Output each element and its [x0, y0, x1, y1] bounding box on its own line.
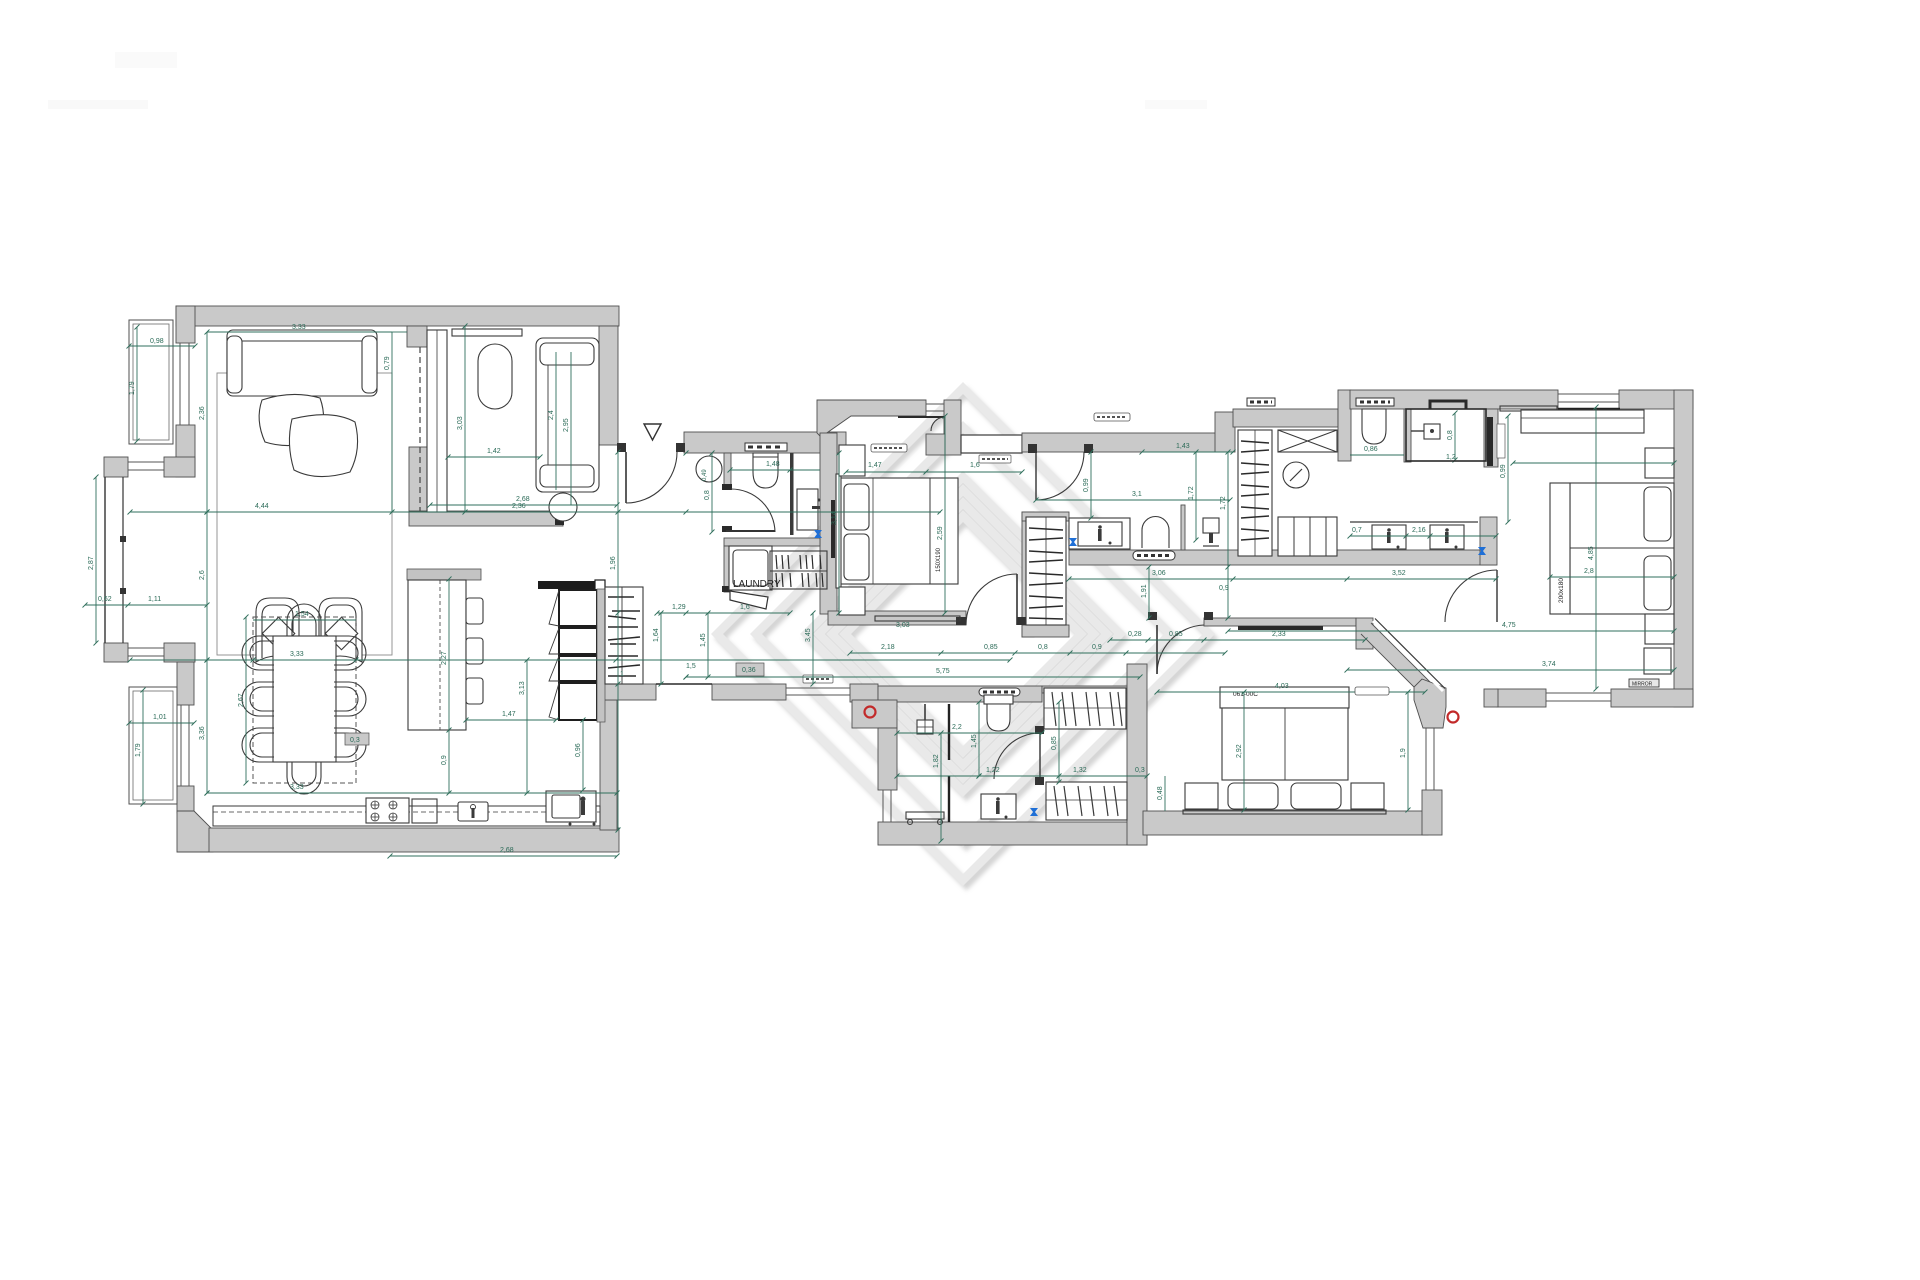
svg-text:3,03: 3,03	[896, 622, 910, 629]
svg-text:1,91: 1,91	[1141, 584, 1148, 598]
svg-text:0,36: 0,36	[742, 667, 756, 674]
svg-text:LAUNDRY: LAUNDRY	[733, 579, 781, 590]
svg-text:2,4: 2,4	[548, 410, 555, 420]
svg-text:3,33: 3,33	[290, 651, 304, 658]
svg-text:1,42: 1,42	[487, 448, 501, 455]
svg-text:2,95: 2,95	[563, 418, 570, 432]
svg-text:1,47: 1,47	[502, 711, 516, 718]
svg-text:2,87: 2,87	[88, 556, 95, 570]
svg-text:0,85: 0,85	[984, 644, 998, 651]
svg-text:1,79: 1,79	[129, 381, 136, 395]
svg-text:1,45: 1,45	[971, 734, 978, 748]
svg-text:1,43: 1,43	[1176, 443, 1190, 450]
svg-text:1,45: 1,45	[700, 633, 707, 647]
svg-text:0,49: 0,49	[702, 469, 708, 481]
svg-text:0,7: 0,7	[1352, 527, 1362, 534]
svg-text:2,67: 2,67	[238, 693, 245, 707]
svg-text:150X190: 150X190	[936, 547, 942, 572]
svg-text:4,85: 4,85	[1588, 546, 1595, 560]
svg-text:2,18: 2,18	[881, 644, 895, 651]
svg-text:3,74: 3,74	[1542, 661, 1556, 668]
svg-text:3,33: 3,33	[290, 784, 304, 791]
svg-text:5,75: 5,75	[936, 668, 950, 675]
svg-text:2,33: 2,33	[1272, 631, 1286, 638]
svg-text:0,8: 0,8	[1038, 644, 1048, 651]
svg-text:1,6: 1,6	[740, 604, 750, 611]
svg-text:0,9: 0,9	[1092, 644, 1102, 651]
svg-text:1,72: 1,72	[1188, 486, 1195, 500]
svg-text:0,9: 0,9	[441, 755, 448, 765]
svg-text:0,85: 0,85	[1051, 736, 1058, 750]
svg-text:0,98: 0,98	[150, 338, 164, 345]
svg-text:2,6: 2,6	[199, 570, 206, 580]
svg-text:2,27: 2,27	[441, 651, 448, 665]
svg-text:3,03: 3,03	[457, 416, 464, 430]
svg-text:3,13: 3,13	[519, 681, 526, 695]
svg-text:1,29: 1,29	[672, 604, 686, 611]
svg-text:1,32: 1,32	[1073, 767, 1087, 774]
svg-text:0,9: 0,9	[1219, 585, 1229, 592]
svg-text:0,96: 0,96	[575, 743, 582, 757]
svg-text:1: 1	[620, 671, 624, 678]
svg-text:3,33: 3,33	[292, 324, 306, 331]
svg-text:2,68: 2,68	[500, 847, 514, 854]
svg-text:1,2: 1,2	[1446, 454, 1456, 461]
svg-text:0,8: 0,8	[1447, 430, 1454, 440]
svg-text:3,1: 3,1	[1132, 491, 1142, 498]
svg-text:0,28: 0,28	[1128, 631, 1142, 638]
svg-text:3,14: 3,14	[831, 511, 838, 525]
svg-text:0,8: 0,8	[704, 490, 711, 500]
svg-text:3,36: 3,36	[199, 726, 206, 740]
svg-text:MIRROR: MIRROR	[1632, 682, 1653, 688]
svg-text:1,72: 1,72	[1220, 496, 1227, 510]
svg-text:200x180: 200x180	[1558, 578, 1565, 603]
svg-text:4,44: 4,44	[255, 503, 269, 510]
svg-text:0,3: 0,3	[350, 737, 360, 744]
svg-text:0,99: 0,99	[1083, 478, 1090, 492]
svg-text:3,45: 3,45	[805, 628, 812, 642]
svg-text:1,6: 1,6	[970, 462, 980, 469]
svg-text:2,2: 2,2	[952, 724, 962, 731]
svg-text:4,75: 4,75	[1502, 622, 1516, 629]
svg-text:0,86: 0,86	[1364, 446, 1378, 453]
svg-text:4,03: 4,03	[1275, 683, 1289, 690]
svg-text:2,59: 2,59	[937, 526, 944, 540]
svg-text:3,06: 3,06	[1152, 570, 1166, 577]
svg-text:1,22: 1,22	[986, 767, 1000, 774]
svg-text:2,36: 2,36	[199, 406, 206, 420]
svg-text:3,52: 3,52	[1392, 570, 1406, 577]
svg-text:2,36: 2,36	[512, 503, 526, 510]
svg-text:0,3: 0,3	[1135, 767, 1145, 774]
svg-text:2,92: 2,92	[1236, 744, 1243, 758]
svg-text:0,62: 0,62	[98, 596, 112, 603]
svg-text:1,96: 1,96	[610, 556, 617, 570]
svg-text:0,48: 0,48	[1157, 786, 1164, 800]
svg-text:1,54: 1,54	[295, 611, 309, 618]
svg-text:1,82: 1,82	[933, 754, 940, 768]
svg-text:2,8: 2,8	[1584, 568, 1594, 575]
svg-text:1,11: 1,11	[148, 596, 161, 603]
svg-text:0,79: 0,79	[384, 356, 391, 370]
svg-text:1,48: 1,48	[766, 461, 780, 468]
svg-text:1,5: 1,5	[686, 663, 696, 670]
svg-text:1,47: 1,47	[868, 462, 882, 469]
svg-text:1,9: 1,9	[1400, 748, 1407, 758]
svg-text:1,79: 1,79	[135, 743, 142, 757]
svg-text:2,68: 2,68	[516, 496, 530, 503]
svg-text:0,99: 0,99	[1500, 464, 1507, 478]
svg-text:0,85: 0,85	[1169, 631, 1183, 638]
svg-text:2,16: 2,16	[1412, 527, 1426, 534]
svg-text:1,01: 1,01	[153, 714, 167, 721]
svg-text:1,64: 1,64	[653, 628, 660, 642]
